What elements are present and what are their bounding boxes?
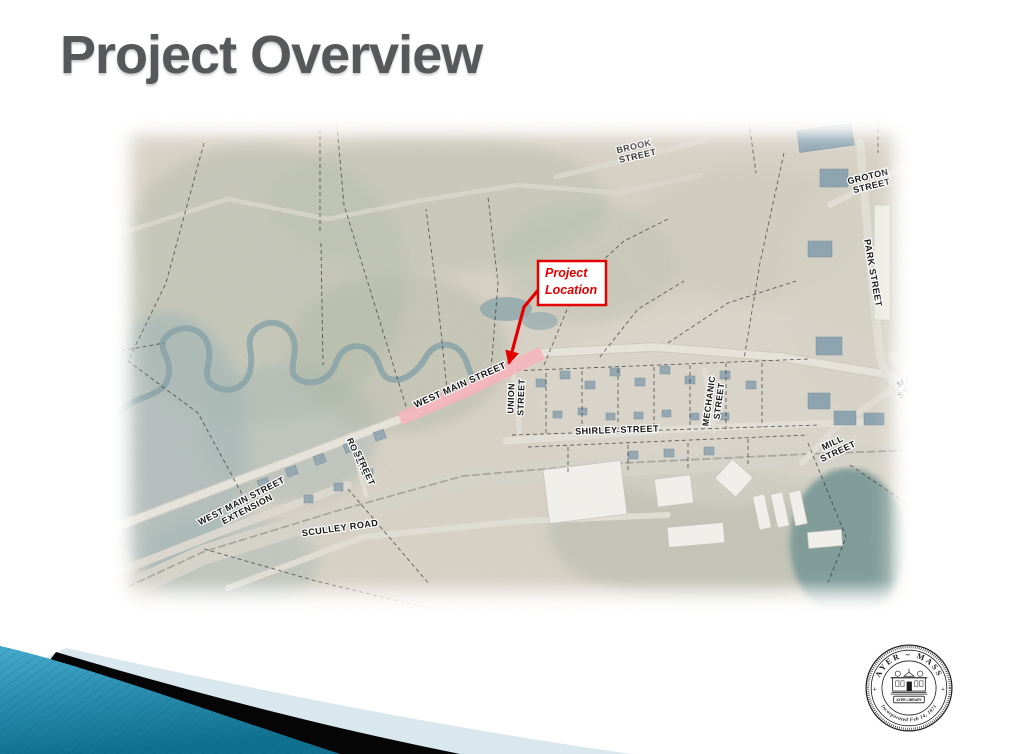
callout-line1: Project: [545, 266, 588, 280]
page-title: Project Overview: [60, 24, 482, 86]
town-seal: AYER ~ MASS Incorporated Feb 14, 1871 + …: [862, 641, 956, 735]
seal-right-plus: +: [941, 686, 945, 693]
aerial-map: BROOK STREET GROTON STREET PARK STREET M…: [108, 113, 916, 618]
street-label-union: UNION STREET: [505, 378, 526, 416]
presentation-slide: Project Overview: [0, 0, 1024, 754]
decorative-ribbon: [0, 630, 660, 754]
aerial-map-graphic: BROOK STREET GROTON STREET PARK STREET M…: [108, 113, 916, 618]
seal-banner-text: AYER LIBRARY: [896, 698, 922, 702]
seal-left-plus: +: [873, 686, 877, 693]
callout-line2: Location: [545, 283, 597, 297]
